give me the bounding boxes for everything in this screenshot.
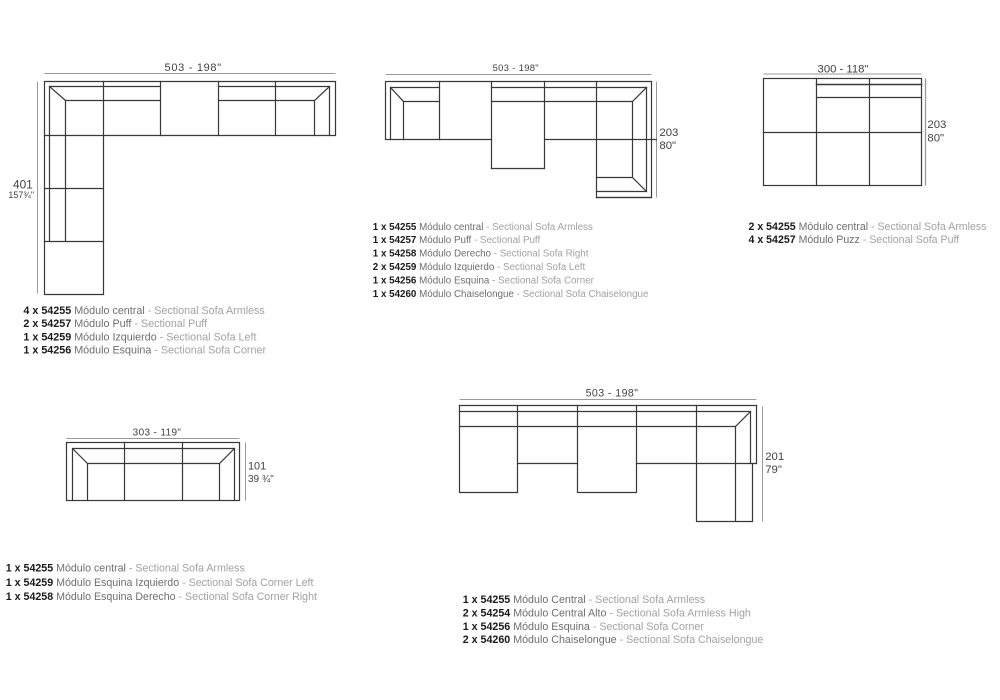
svg-text:203: 203 bbox=[927, 119, 946, 131]
svg-text:1 x 54255 Módulo Central - Sec: 1 x 54255 Módulo Central - Sectional Sof… bbox=[463, 594, 705, 606]
svg-text:4 x 54257 Módulo Puzz - Sectio: 4 x 54257 Módulo Puzz - Sectional Sofa P… bbox=[749, 234, 960, 246]
svg-text:2 x 54255 Módulo central - Sec: 2 x 54255 Módulo central - Sectional Sof… bbox=[749, 221, 987, 233]
svg-text:1 x 54259 Módulo Esquina Izqui: 1 x 54259 Módulo Esquina Izquierdo - Sec… bbox=[6, 577, 314, 589]
svg-text:1 x 54256 Módulo Esquina - Sec: 1 x 54256 Módulo Esquina - Sectional Sof… bbox=[373, 275, 595, 286]
svg-text:1 x 54260 Módulo Chaiselongue: 1 x 54260 Módulo Chaiselongue - Sectiona… bbox=[373, 289, 649, 300]
svg-text:79": 79" bbox=[765, 464, 782, 476]
svg-text:503 - 198": 503 - 198" bbox=[493, 62, 539, 73]
svg-text:203: 203 bbox=[659, 127, 678, 139]
svg-text:1 x 54256 Módulo Esquina - Sec: 1 x 54256 Módulo Esquina - Sectional Sof… bbox=[23, 345, 266, 357]
svg-text:1 x 54258 Módulo Esquina Derec: 1 x 54258 Módulo Esquina Derecho - Secti… bbox=[6, 591, 317, 603]
svg-text:300 - 118": 300 - 118" bbox=[818, 63, 869, 75]
svg-text:2 x 54257 Módulo Puff - Sectio: 2 x 54257 Módulo Puff - Sectional Puff bbox=[23, 318, 207, 330]
svg-text:2 x 54259 Módulo Izquierdo - S: 2 x 54259 Módulo Izquierdo - Sectional S… bbox=[373, 262, 586, 273]
svg-text:1 x 54257 Módulo Puff - Sectio: 1 x 54257 Módulo Puff - Sectional Puff bbox=[373, 235, 541, 246]
svg-text:80": 80" bbox=[927, 133, 944, 145]
svg-text:503 - 198": 503 - 198" bbox=[165, 62, 222, 74]
svg-text:1 x 54259 Módulo Izquierdo - S: 1 x 54259 Módulo Izquierdo - Sectional S… bbox=[23, 331, 256, 343]
svg-text:4 x 54255 Módulo central - Sec: 4 x 54255 Módulo central - Sectional Sof… bbox=[23, 305, 264, 317]
svg-text:1 x 54258 Módulo Derecho - Sec: 1 x 54258 Módulo Derecho - Sectional Sof… bbox=[373, 249, 589, 260]
svg-text:503 - 198": 503 - 198" bbox=[586, 388, 639, 400]
svg-text:1 x 54256 Módulo Esquina - Sec: 1 x 54256 Módulo Esquina - Sectional Sof… bbox=[463, 621, 705, 633]
svg-text:157¾": 157¾" bbox=[8, 190, 34, 200]
svg-text:2 x 54260 Módulo Chaiselongue: 2 x 54260 Módulo Chaiselongue - Sectiona… bbox=[463, 634, 764, 646]
svg-text:80": 80" bbox=[659, 140, 676, 152]
svg-text:1 x 54255 Módulo central - Sec: 1 x 54255 Módulo central - Sectional Sof… bbox=[373, 222, 593, 233]
svg-text:303 - 119": 303 - 119" bbox=[133, 427, 182, 438]
svg-text:201: 201 bbox=[765, 451, 784, 463]
svg-text:39 ¾": 39 ¾" bbox=[248, 474, 274, 485]
svg-text:101: 101 bbox=[248, 461, 266, 473]
svg-text:2 x 54254 Módulo Central Alto: 2 x 54254 Módulo Central Alto - Sectiona… bbox=[463, 607, 751, 619]
svg-text:1 x 54255 Módulo central - Sec: 1 x 54255 Módulo central - Sectional Sof… bbox=[6, 563, 245, 575]
